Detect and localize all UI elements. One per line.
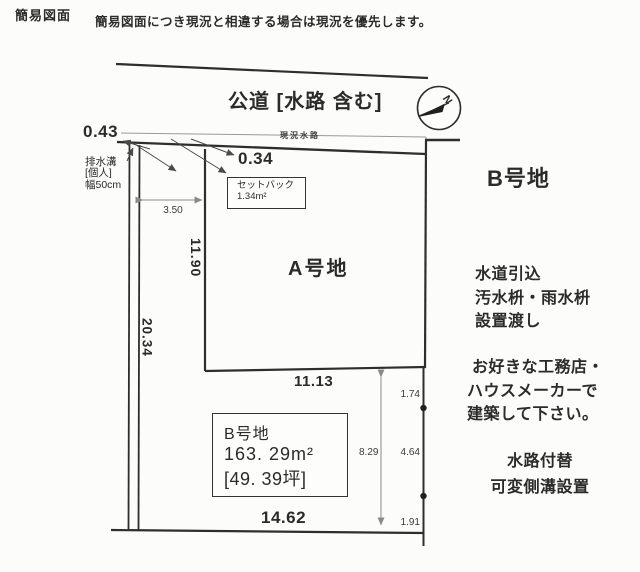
note-utilities: 水道引込 汚水枡・雨水枡 設置渡し <box>475 263 591 334</box>
note-build-line3: 建築して下さい。 <box>467 403 604 427</box>
right-boundary-upper <box>425 140 426 368</box>
dim-1-74: 1.74 <box>385 389 420 401</box>
drain-note-line2: [個人] <box>85 168 121 179</box>
note-build-line2: ハウスメーカーで <box>467 380 604 404</box>
note-utilities-line1: 水道引込 <box>475 263 591 287</box>
dim-8-29: 8.29 <box>359 447 378 459</box>
drain-line-outer <box>129 143 130 530</box>
dim-1-91: 1.91 <box>385 517 420 529</box>
note-build-line1: お好きな工務店・ <box>467 356 604 380</box>
disclaimer-text: 簡易図面につき現況と相違する場合は現況を優先します。 <box>95 15 432 29</box>
road-top-line <box>116 64 428 78</box>
plot-b-name: B号地 <box>224 420 347 444</box>
plot-b-area-tsubo: [49. 39坪] <box>224 465 347 491</box>
plot-a-bottom-edge <box>205 367 426 371</box>
dim-11-90: 11.90 <box>188 238 204 277</box>
dim-4-64: 4.64 <box>385 447 420 459</box>
plot-b-title: B号地 <box>487 166 550 191</box>
setback-area: 1.34m² <box>237 192 305 203</box>
note-waterway-line2: 可変側溝設置 <box>467 475 613 501</box>
page-title: 簡易図面 <box>15 9 71 24</box>
note-build: お好きな工務店・ ハウスメーカーで 建築して下さい。 <box>467 356 604 427</box>
offset-right-value: 0.34 <box>238 149 273 169</box>
plot-plan-document: 簡易図面 簡易図面につき現況と相違する場合は現況を優先します。 公道 [水路 含… <box>0 0 640 572</box>
boundary-point-lower <box>420 493 426 499</box>
leader-setback-2 <box>130 141 176 171</box>
dim-3-50: 3.50 <box>157 205 189 217</box>
drain-note-line3: 幅50cm <box>85 180 121 191</box>
dim-14-62: 14.62 <box>261 508 306 528</box>
dim-20-34: 20.34 <box>139 318 155 357</box>
setback-box: セットバック 1.34m² <box>227 177 306 209</box>
drain-note: 排水溝 [個人] 幅50cm <box>85 157 121 191</box>
note-waterway-line1: 水路付替 <box>467 449 613 475</box>
waterway-band-line <box>121 133 426 137</box>
note-utilities-line3: 設置渡し <box>475 310 591 334</box>
note-utilities-line2: 汚水枡・雨水枡 <box>475 287 591 311</box>
plot-a-label: A号地 <box>288 258 348 281</box>
waterway-label: 現況水路 <box>280 131 320 140</box>
boundary-point-upper <box>420 405 426 411</box>
dim-11-13: 11.13 <box>294 373 333 390</box>
plot-b-area-m2: 163. 29m² <box>224 444 347 465</box>
plot-b-info-box: B号地 163. 29m² [49. 39坪] <box>212 413 348 497</box>
note-waterway: 水路付替 可変側溝設置 <box>467 449 613 501</box>
south-boundary-line <box>111 530 424 533</box>
offset-left-value: 0.43 <box>83 122 118 142</box>
road-label: 公道 [水路 含む] <box>228 91 382 114</box>
